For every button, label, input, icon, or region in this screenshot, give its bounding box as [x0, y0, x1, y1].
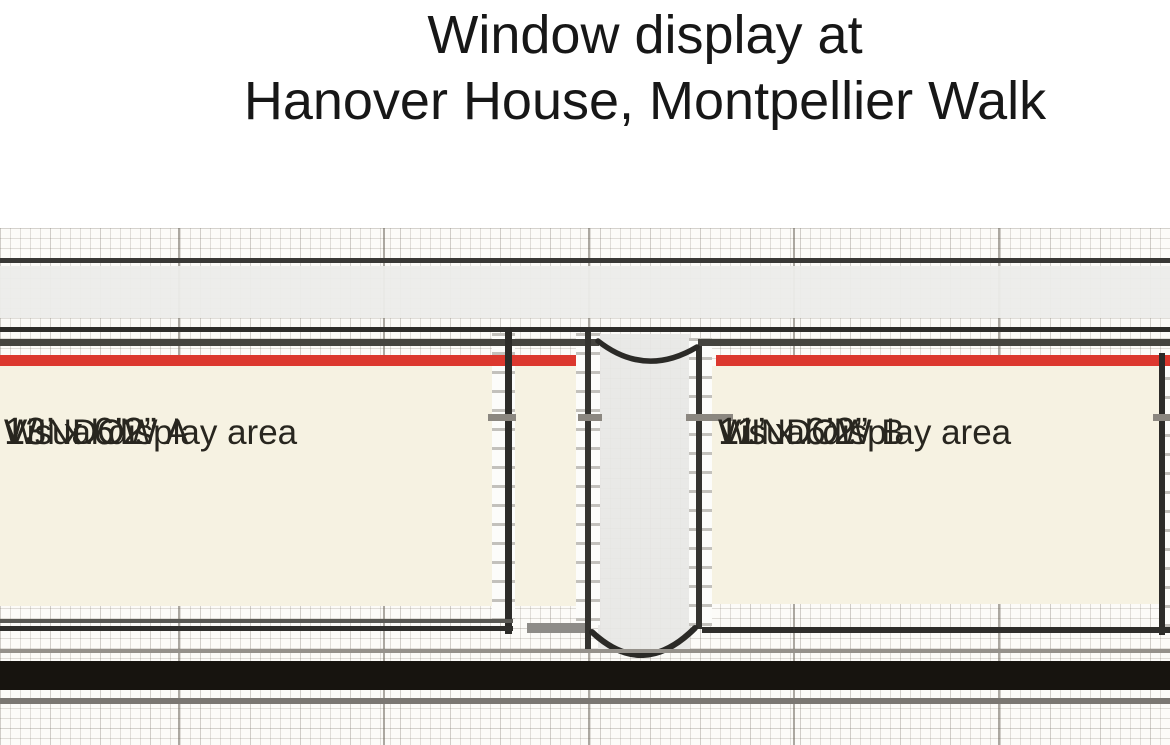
window-b-sill-line — [702, 627, 1170, 633]
window-display-plan-page: Window display at Hanover House, Montpel… — [0, 0, 1170, 745]
shopfront-line-upper — [0, 258, 1170, 263]
page-title: Window display at Hanover House, Montpel… — [60, 2, 1170, 134]
column-left-edge — [585, 332, 591, 650]
window-b-highlight-line — [716, 355, 1170, 366]
gridline-tick — [1153, 414, 1170, 421]
window-a-mullion — [505, 328, 512, 634]
title-line-2: Hanover House, Montpellier Walk — [60, 68, 1170, 134]
shopfront-line-lower-right — [698, 339, 1170, 346]
window-a-highlight-line — [0, 355, 576, 366]
kerb-line-lower — [0, 698, 1170, 704]
walkway-band — [0, 266, 1170, 318]
gridline-tick — [488, 414, 516, 421]
kerb-line-upper — [0, 649, 1170, 653]
title-line-1: Window display at — [60, 2, 1170, 68]
window-b-dimensions: 11’ x 6’2” — [718, 410, 868, 455]
window-a-sill-step — [527, 623, 585, 633]
pavement-bar — [0, 661, 1170, 690]
column-right-edge — [696, 346, 702, 629]
window-a-sill-line-lower — [0, 626, 513, 631]
column-pier — [598, 334, 690, 652]
window-a-dimensions: 13’ x 6’2” — [4, 410, 157, 455]
floor-plan: WINDOW A Visual display area 13’ x 6’2” … — [0, 228, 1170, 745]
window-a-sill-line-upper — [0, 619, 513, 623]
gridline-tick — [578, 414, 602, 421]
window-b-mullion — [1159, 353, 1165, 635]
window-b-display-area — [702, 366, 1160, 604]
